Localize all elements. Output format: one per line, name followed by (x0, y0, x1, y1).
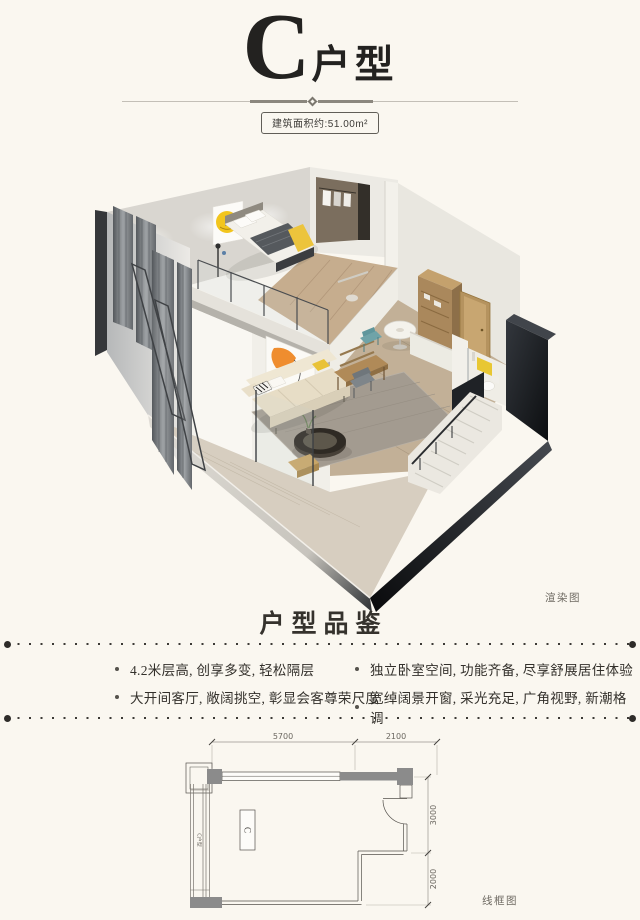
bullet-icon (355, 705, 359, 709)
dim-label: 2000 (429, 869, 438, 889)
feature-text: 大开间客厅, 敞阔挑空, 彰显会客尊荣尺度 (130, 687, 379, 707)
page: { "header": { "unit_letter": "C", "unit_… (0, 0, 640, 920)
title-divider (122, 97, 518, 107)
divider-bar-left (250, 100, 307, 103)
unit-type-label: 户型 (311, 34, 397, 90)
area-badge: 建筑面积约:51.00m² (261, 112, 379, 134)
unit-letter: C (243, 4, 309, 90)
dotted-divider-bottom (6, 717, 634, 720)
floorplan-caption: 线框图 (482, 893, 518, 908)
feature-text: 4.2米层高, 创享多变, 轻松隔层 (130, 659, 314, 679)
unit-label: C (243, 827, 253, 833)
floorplan-figure: 5700 2100 3000 2000 C户型 C (150, 730, 450, 915)
bullet-icon (355, 667, 359, 671)
divider-ornament-icon (308, 97, 318, 107)
feature-item: 4.2米层高, 创享多变, 轻松隔层 (115, 659, 314, 679)
render-3d-figure (80, 150, 570, 620)
floorplan-pillars (190, 768, 413, 908)
page-title: C 户型 (0, 4, 640, 90)
feature-item: 大开间客厅, 敞阔挑空, 彰显会客尊荣尺度 (115, 687, 379, 707)
feature-text: 独立卧室空间, 功能齐备, 尽享舒展居住体验 (370, 659, 633, 679)
area-badge-wrap: 建筑面积约:51.00m² (0, 112, 640, 134)
door-swing-arc (383, 800, 407, 824)
render-caption: 渲染图 (545, 590, 581, 605)
side-unit-label: C户型 (196, 833, 203, 847)
floorplan-walls (186, 739, 440, 908)
features-section-title: 户型品鉴 (0, 604, 640, 640)
bullet-icon (115, 695, 119, 699)
divider-bar-right (318, 100, 373, 103)
facade-edge (95, 210, 107, 356)
feature-text: 宽绰阔景开窗, 采光充足, 广角视野, 新潮格调 (370, 687, 640, 727)
dim-label: 5700 (273, 732, 293, 741)
dim-label: 3000 (429, 805, 438, 825)
bullet-icon (115, 667, 119, 671)
dotted-divider-top (6, 643, 634, 646)
feature-item: 独立卧室空间, 功能齐备, 尽享舒展居住体验 (355, 659, 633, 679)
dim-label: 2100 (386, 732, 406, 741)
wardrobe-closet (316, 177, 370, 243)
feature-item: 宽绰阔景开窗, 采光充足, 广角视野, 新潮格调 (355, 687, 640, 727)
